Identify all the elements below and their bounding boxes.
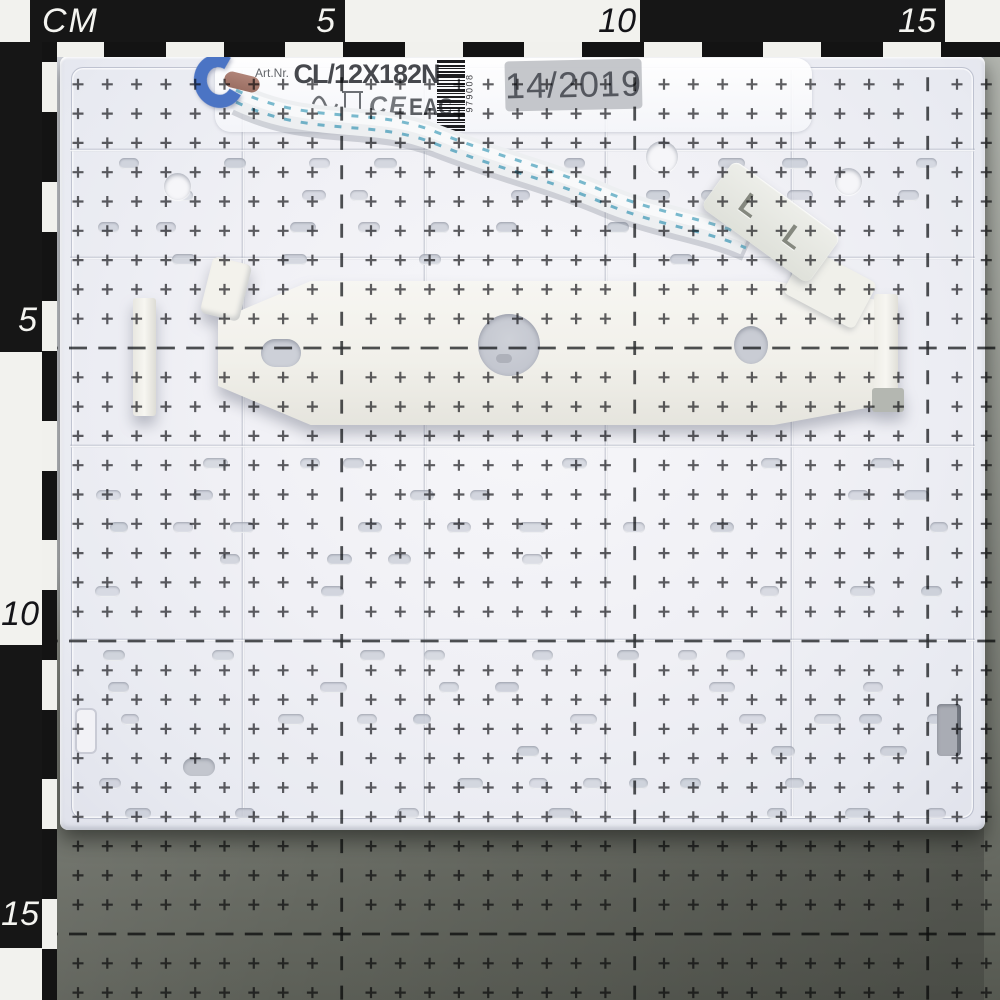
ruler-left: 5 10 15 xyxy=(0,42,42,1000)
ruler-segment xyxy=(0,948,42,1000)
ruler-mark-10: 10 xyxy=(0,594,39,634)
ruler-unit-label: CM xyxy=(42,1,99,41)
ruler-segment xyxy=(945,0,1000,42)
ruler-mark-5: 5 xyxy=(0,300,37,340)
ruler-ticks-left xyxy=(42,42,57,1000)
grid-overlay xyxy=(57,57,1000,1000)
ruler-segment xyxy=(0,0,30,42)
ruler-top: CM 5 10 15 xyxy=(0,0,1000,42)
product-photo: Art.Nr. CL/12X182N CE EAC 979008 14/2019 xyxy=(0,0,1000,1000)
ruler-mark-5: 5 xyxy=(270,1,335,41)
ruler-mark-15: 15 xyxy=(0,894,39,934)
ruler-ticks-top xyxy=(0,42,1000,57)
ruler-mark-15: 15 xyxy=(858,1,936,41)
ruler-mark-10: 10 xyxy=(558,1,636,41)
